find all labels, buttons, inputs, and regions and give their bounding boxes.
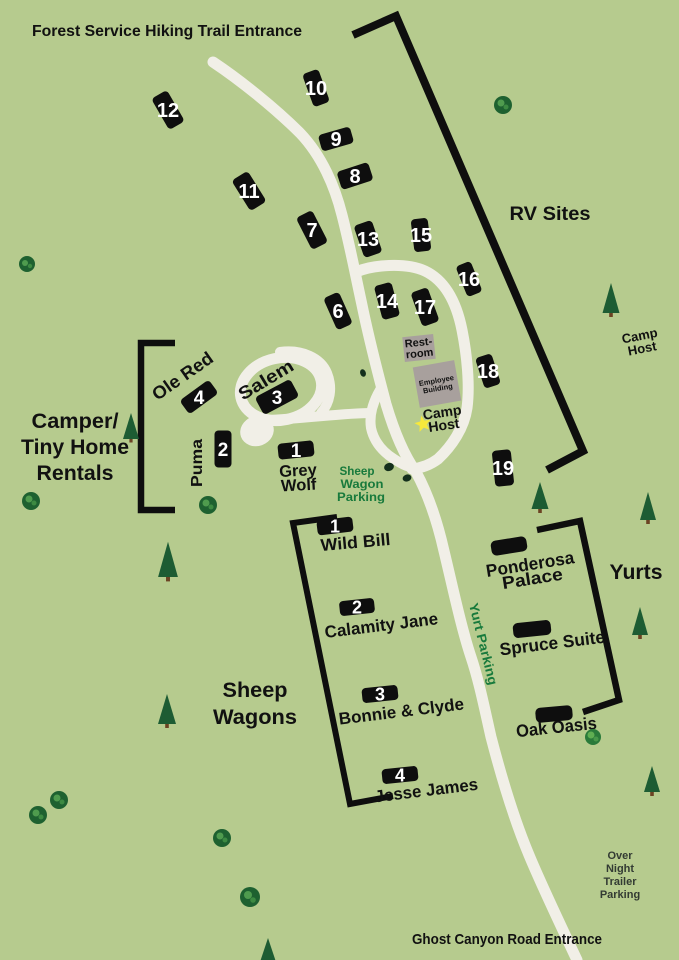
svg-text:Forest Service Hiking Trail En: Forest Service Hiking Trail Entrance bbox=[32, 23, 302, 40]
svg-text:Wolf: Wolf bbox=[281, 476, 318, 496]
svg-text:14: 14 bbox=[376, 291, 399, 313]
svg-text:19: 19 bbox=[492, 458, 514, 480]
svg-text:Wagon: Wagon bbox=[341, 477, 384, 491]
svg-text:1: 1 bbox=[291, 441, 302, 462]
svg-text:Over: Over bbox=[607, 850, 633, 862]
svg-text:9: 9 bbox=[330, 129, 341, 151]
svg-text:RV Sites: RV Sites bbox=[510, 204, 591, 225]
svg-text:Sheep: Sheep bbox=[223, 679, 288, 702]
svg-text:Yurts: Yurts bbox=[610, 561, 663, 584]
svg-text:Trailer: Trailer bbox=[603, 876, 637, 888]
svg-text:11: 11 bbox=[238, 181, 259, 203]
svg-text:17: 17 bbox=[414, 297, 436, 319]
svg-text:Wagons: Wagons bbox=[213, 706, 297, 729]
svg-text:Sheep: Sheep bbox=[340, 464, 375, 478]
svg-text:3: 3 bbox=[375, 685, 385, 705]
svg-text:7: 7 bbox=[306, 220, 317, 242]
svg-text:13: 13 bbox=[357, 229, 379, 251]
svg-text:2: 2 bbox=[352, 598, 362, 618]
svg-text:18: 18 bbox=[477, 361, 499, 383]
svg-text:Tiny Home: Tiny Home bbox=[21, 435, 129, 459]
svg-text:4: 4 bbox=[194, 388, 205, 409]
svg-text:Night: Night bbox=[606, 863, 634, 875]
svg-text:Camper/: Camper/ bbox=[32, 409, 119, 433]
svg-text:Parking: Parking bbox=[600, 889, 640, 901]
svg-text:Puma: Puma bbox=[189, 439, 206, 487]
svg-text:8: 8 bbox=[349, 166, 360, 188]
svg-text:15: 15 bbox=[410, 225, 432, 247]
svg-text:2: 2 bbox=[218, 440, 229, 461]
svg-text:Rentals: Rentals bbox=[37, 461, 114, 485]
svg-text:12: 12 bbox=[157, 100, 179, 122]
svg-text:6: 6 bbox=[332, 301, 343, 323]
svg-text:Parking: Parking bbox=[337, 490, 385, 504]
svg-text:16: 16 bbox=[458, 269, 480, 291]
svg-text:10: 10 bbox=[305, 78, 327, 100]
svg-text:Ghost Canyon Road Entrance: Ghost Canyon Road Entrance bbox=[412, 931, 602, 948]
svg-text:3: 3 bbox=[272, 388, 283, 409]
svg-text:4: 4 bbox=[395, 766, 405, 786]
